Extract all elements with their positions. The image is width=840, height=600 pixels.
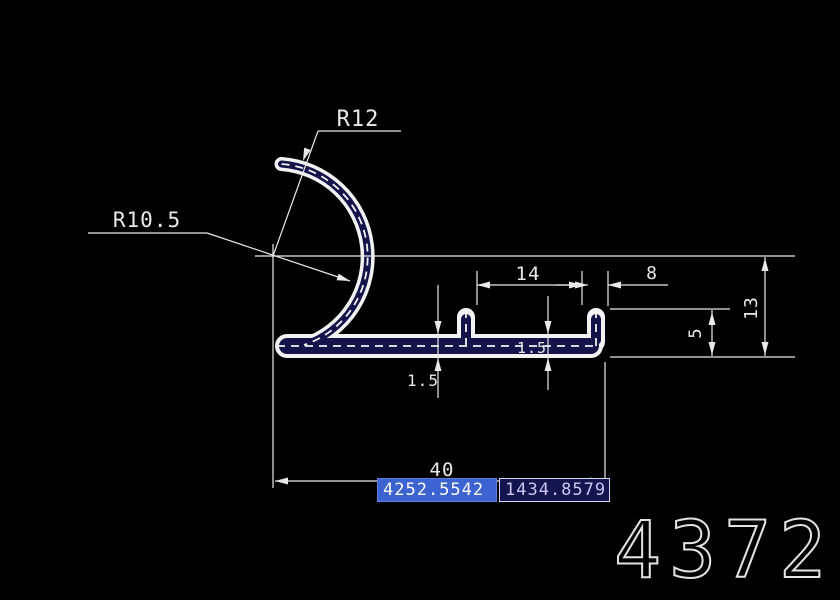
dim-wall-right: 1.5	[517, 339, 547, 357]
drawing-number: 4372	[614, 506, 834, 596]
dim-wall-left: 1.5	[407, 371, 439, 390]
dim-14: 14	[516, 263, 541, 285]
dynamic-input-x-field[interactable]: 4252.5542	[377, 478, 497, 502]
radius-label-outer: R12	[337, 107, 380, 132]
dim-13: 13	[741, 296, 762, 320]
profile-outline	[277, 164, 602, 346]
dynamic-input-y-field[interactable]: 1434.8579	[499, 478, 610, 502]
dimension-lines	[88, 131, 795, 488]
dim-5: 5	[686, 327, 706, 338]
radius-label-inner: R10.5	[113, 208, 181, 232]
dim-8: 8	[646, 263, 658, 284]
cad-viewport[interactable]: R12 R10.5 14 8 13 5 1.5 1.5 40 4252.5542…	[0, 0, 840, 600]
